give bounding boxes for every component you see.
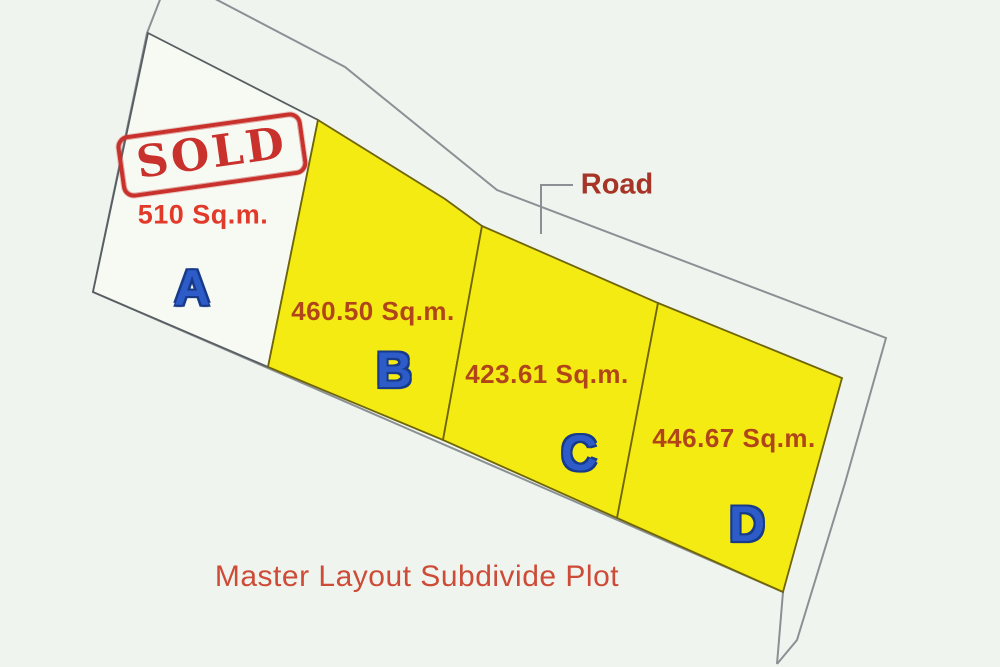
plot-d-letter: D — [729, 499, 765, 549]
page-title: Master Layout Subdivide Plot — [215, 562, 619, 592]
plot-b-area-label: 460.50 Sq.m. — [291, 298, 455, 324]
plot-b-letter: B — [376, 345, 412, 395]
plot-d-area-label: 446.67 Sq.m. — [652, 425, 816, 451]
plot-c-area-label: 423.61 Sq.m. — [465, 361, 629, 387]
plot-a-letter: A — [174, 263, 210, 313]
plot-a-area-label: 510 Sq.m. — [138, 202, 269, 229]
plot-map-canvas: SOLD 510 Sq.m. A 460.50 Sq.m. B 423.61 S… — [0, 0, 1000, 667]
plot-c-letter: C — [561, 428, 597, 478]
road-label: Road — [581, 171, 654, 200]
